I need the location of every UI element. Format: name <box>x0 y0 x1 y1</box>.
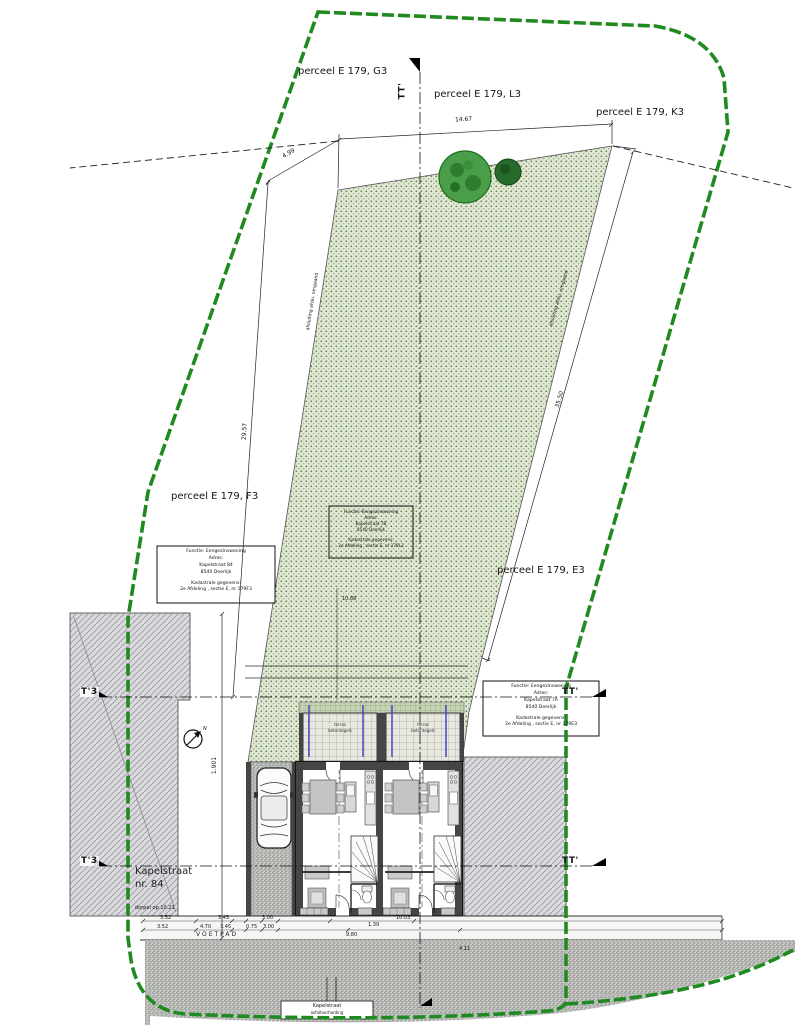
car <box>254 768 294 848</box>
parcel-label-l3: perceel E 179, L3 <box>434 89 521 100</box>
dim-row2-6: 4.11 <box>459 946 470 952</box>
garden-area <box>245 146 612 762</box>
info-left-address-title: Adres: <box>157 556 275 563</box>
terrace-left-line2: betontegels <box>318 728 362 734</box>
dim-left-depth: 29.57 <box>241 423 249 441</box>
terrace-label-left: terras betontegels <box>318 722 362 733</box>
info-right-cadastre: 2e Afdeling , sectie E, nr 179E3 <box>483 722 599 729</box>
section-mark-top: TT' <box>397 83 407 100</box>
dim-row2-4: 3.00 <box>263 924 274 930</box>
info-mid-cadastre: 2e Afdeling , sectie E, nr 179L3 <box>329 543 413 549</box>
info-right-address-title: Adres: <box>483 691 599 698</box>
planting-strip <box>299 702 464 713</box>
info-left-function: Functie: Eengezinswoning <box>157 549 275 556</box>
info-left-cadastre: 2e Afdeling , sectie E, nr 179F3 <box>157 587 275 594</box>
parcel-label-f3: perceel E 179, F3 <box>171 491 258 502</box>
section-mark-left-lower: T'3 <box>80 856 99 866</box>
terraces <box>299 705 464 762</box>
dim-row1-1: 3.45 <box>218 915 229 921</box>
tree-small <box>495 159 521 185</box>
dim-row2-3: 0.75 <box>246 924 257 930</box>
dim-row2-0: 3.52 <box>157 924 168 930</box>
sill-note: dorpel op 10.21 <box>135 905 175 911</box>
info-right-city: 8540 Deerlijk <box>483 705 599 712</box>
dim-row2-1: 4.70 <box>200 924 211 930</box>
info-right-function: Functie: Eengezinswoning <box>483 684 599 691</box>
existing-house-name-line1: Kapelstraat <box>135 866 192 879</box>
dim-left-height: 1.901 <box>211 757 218 774</box>
dim-top-width: 14.67 <box>455 116 473 124</box>
north-arrow-icon <box>184 730 202 748</box>
road-label-line2: asfaltverharding <box>287 1010 367 1015</box>
terrace-right-line2: betontegels <box>401 728 445 734</box>
tree-large <box>439 151 491 203</box>
dim-row1-3: 1.39 <box>368 922 379 928</box>
existing-house-name-line2: nr. 84 <box>135 879 192 892</box>
dim-row2-2: 3.45 <box>220 924 231 930</box>
site-plan: perceel E 179, G3 perceel E 179, L3 perc… <box>0 0 795 1025</box>
dim-garden-inner: 10.88 <box>342 596 356 602</box>
parcel-label-e3: perceel E 179, E3 <box>497 565 585 576</box>
parcel-label-g3: perceel E 179, G3 <box>298 66 387 77</box>
dim-row2-5: 9.80 <box>346 932 357 938</box>
existing-house-name: Kapelstraat nr. 84 <box>135 866 192 891</box>
road <box>145 940 795 1025</box>
info-box-left: Functie: Eengezinswoning Adres: Kapelstr… <box>157 549 275 594</box>
section-mark-left-upper: T'3 <box>80 687 99 697</box>
info-box-middle: Functie: Eengezinswoning Adres: Kapelstr… <box>329 509 413 550</box>
road-label-line1: Kapelstraat <box>287 1003 367 1009</box>
house-block <box>296 762 462 916</box>
info-box-right: Functie: Eengezinswoning Adres: Kapelstr… <box>483 684 599 729</box>
sidewalk-label: VOETPAD <box>196 931 238 938</box>
info-left-street: Kapelstraat 84 <box>157 563 275 570</box>
dim-row1-0: 3.52 <box>160 915 171 921</box>
info-left-city: 8540 Deerlijk <box>157 570 275 577</box>
section-mark-right-lower: TT' <box>562 856 579 866</box>
info-mid-city: 8540 Deerlijk <box>329 527 413 533</box>
parcel-label-k3: perceel E 179, K3 <box>596 107 684 118</box>
dim-row1-2: 3.00 <box>262 915 273 921</box>
neighbour-building-right <box>464 757 566 916</box>
dim-row1-4: 10.03 <box>396 915 410 921</box>
terrace-label-right: terras betontegels <box>401 722 445 733</box>
north-label: N <box>203 726 207 732</box>
info-right-street: Kapelstraat 7A <box>483 698 599 705</box>
